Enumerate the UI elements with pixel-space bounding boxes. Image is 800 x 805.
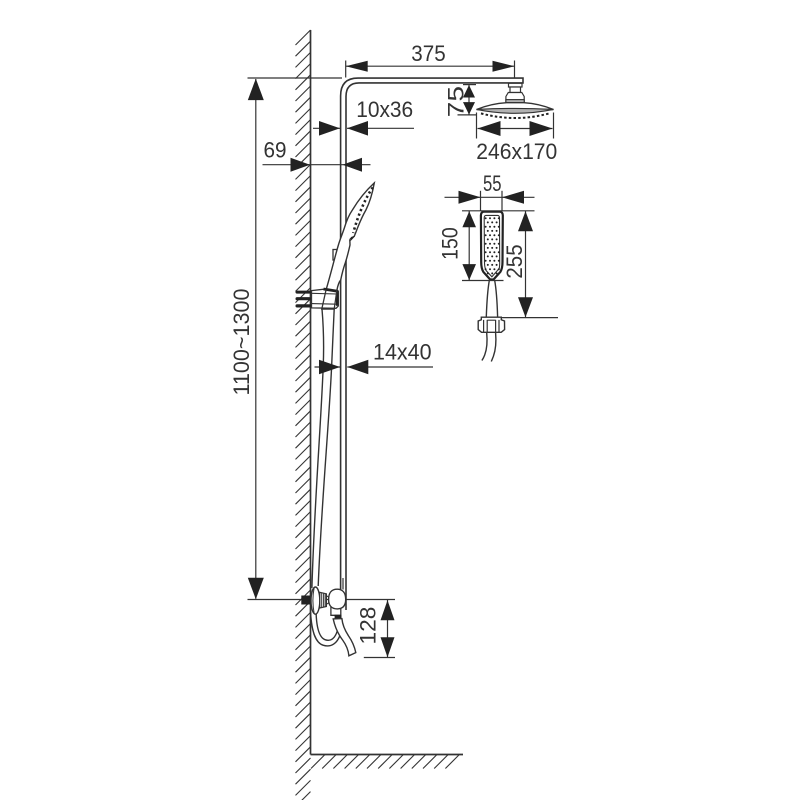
svg-text:246x170: 246x170 bbox=[476, 139, 557, 164]
svg-text:75: 75 bbox=[444, 86, 469, 117]
svg-text:10x36: 10x36 bbox=[356, 97, 413, 122]
svg-text:375: 375 bbox=[411, 41, 445, 66]
svg-text:150: 150 bbox=[438, 227, 463, 260]
svg-text:255: 255 bbox=[502, 244, 527, 278]
svg-text:128: 128 bbox=[356, 607, 381, 645]
svg-text:14x40: 14x40 bbox=[373, 339, 432, 364]
svg-text:55: 55 bbox=[483, 171, 502, 196]
svg-text:1100~1300: 1100~1300 bbox=[229, 289, 254, 396]
svg-text:69: 69 bbox=[264, 137, 287, 162]
